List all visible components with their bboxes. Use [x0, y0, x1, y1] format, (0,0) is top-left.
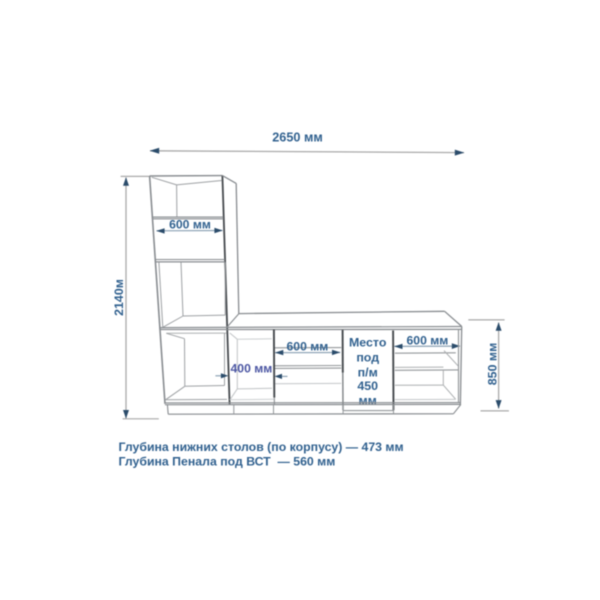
svg-text:мм: мм: [359, 394, 377, 408]
svg-text:п/м: п/м: [358, 365, 378, 379]
svg-text:600 мм: 600 мм: [407, 334, 449, 348]
svg-text:2140м: 2140м: [112, 279, 126, 316]
svg-text:Место: Место: [349, 336, 387, 350]
svg-text:под: под: [356, 351, 379, 365]
svg-text:2650 мм: 2650 мм: [272, 130, 323, 144]
svg-text:400 мм: 400 мм: [231, 362, 273, 376]
svg-text:600 мм: 600 мм: [287, 339, 329, 353]
svg-text:450: 450: [357, 379, 378, 393]
svg-text:Глубина Пенала под ВСТ — 560: Глубина Пенала под ВСТ — 560 мм: [119, 455, 336, 469]
svg-text:850 мм: 850 мм: [485, 343, 499, 385]
svg-text:600 мм: 600 мм: [169, 218, 211, 232]
svg-text:Глубина нижних столов (по корп: Глубина нижних столов (по корпусу) — 473…: [119, 440, 404, 454]
